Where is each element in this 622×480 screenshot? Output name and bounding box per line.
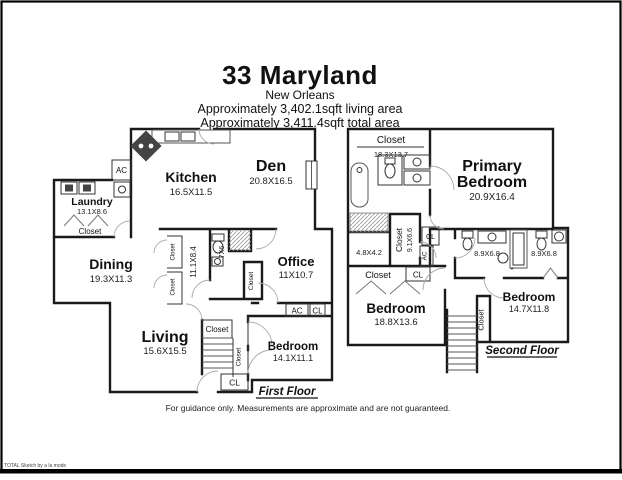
ac-label: AC	[116, 166, 127, 175]
stove-burner-icon	[149, 144, 154, 149]
shower-tile-icon	[350, 213, 388, 232]
washer-door-icon	[65, 185, 73, 192]
room-label-primary-line1: Primary	[462, 158, 522, 175]
living-area-text: Approximately 3,402.1sqft living area	[198, 102, 403, 116]
room-dims-living: 15.6X15.5	[143, 346, 186, 357]
closet-label: Closet	[377, 135, 406, 146]
disclaimer-text: For guidance only. Measurements are appr…	[166, 403, 451, 413]
walk-in-closet-dims: 9.1X6.6	[407, 228, 414, 252]
room-dims-kitchen: 16.5X11.5	[170, 187, 213, 198]
bath-left-dims: 8.9X6.8	[474, 249, 500, 258]
cl-label: CL	[426, 234, 435, 241]
cl-label: CL	[413, 271, 424, 280]
closet-label: Closet	[171, 243, 177, 260]
room-label-bedroom-right: Bedroom	[503, 290, 556, 304]
closet-label: Closet	[79, 227, 102, 236]
closet-label: Closet	[206, 325, 229, 334]
closet-label: Closet	[394, 227, 404, 252]
room-label-bedroom: Bedroom	[268, 341, 318, 353]
ac-label: AC	[291, 307, 302, 316]
page-subtitle: New Orleans	[265, 88, 334, 102]
page-title: 33 Maryland	[222, 60, 378, 90]
room-dims-dining: 19.3X11.3	[90, 274, 133, 285]
room-label-bedroom-left: Bedroom	[366, 301, 425, 316]
cl-label: CL	[312, 307, 323, 316]
room-label-living: Living	[141, 329, 188, 346]
room-label-den: Den	[256, 158, 286, 175]
bath-right-dims: 8.9X6.8	[531, 249, 557, 258]
second-floor-caption: Second Floor	[485, 345, 559, 357]
bathtub-icon	[351, 163, 368, 207]
room-dims-den: 20.8X16.5	[249, 176, 292, 187]
room-dims-office: 11X10.7	[279, 270, 314, 281]
closet-label: Closet	[248, 272, 255, 291]
room-dims-primary: 20.9X16.4	[469, 192, 515, 203]
closet-label: Closet	[236, 348, 243, 367]
stove-burner-icon	[139, 144, 144, 149]
room-dims-bedroom-right: 14.7X11.8	[509, 304, 549, 314]
first-floor-caption: First Floor	[259, 386, 316, 398]
shower-tile-icon	[229, 231, 251, 251]
floor-plan-sheet: 33 Maryland New Orleans Approximately 3,…	[0, 0, 622, 480]
room-label-office: Office	[278, 254, 315, 269]
bath-dims: 7X6	[219, 246, 226, 259]
hall-dims: 11.1X8.4	[189, 246, 198, 278]
dryer-door-icon	[83, 185, 91, 192]
closet-label: Closet	[171, 278, 177, 295]
room-label-primary-line2: Bedroom	[457, 174, 527, 191]
closet-label: Closet	[365, 270, 391, 280]
room-dims-bedroom-left: 18.8X13.6	[374, 317, 417, 328]
ac-label: AC	[422, 251, 429, 260]
sheet-bottom-bar	[0, 469, 622, 474]
small-room-dims: 4.8X4.2	[356, 248, 382, 257]
room-dims-bedroom: 14.1X11.1	[273, 353, 313, 363]
room-dims-laundry: 13.1X8.6	[77, 207, 107, 216]
closet-label: Closet	[477, 308, 486, 330]
room-label-dining: Dining	[89, 256, 133, 272]
watermark-text: TOTAL Sketch by a la mode	[4, 463, 66, 469]
cl-label: CL	[229, 378, 240, 388]
room-label-kitchen: Kitchen	[165, 169, 216, 185]
